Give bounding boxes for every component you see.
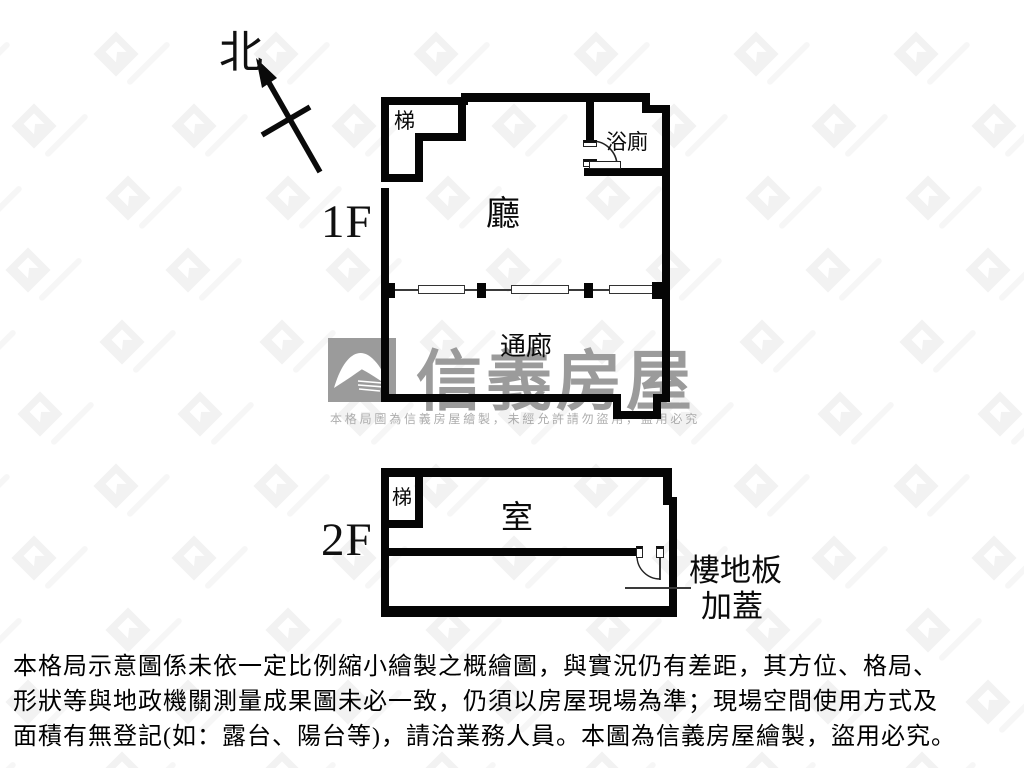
door-jamb: [656, 546, 664, 558]
faint-diagonal-watermark: [24, 398, 56, 430]
wall: [669, 497, 677, 617]
faint-diagonal-watermark: [420, 38, 452, 70]
faint-diagonal-watermark: [266, 758, 298, 768]
faint-diagonal-watermark: [740, 38, 772, 70]
wall: [415, 468, 423, 528]
wall: [461, 93, 650, 102]
wall-post: [389, 283, 395, 298]
annotation-leader-line: [625, 587, 691, 589]
disclaimer-line-2: 形狀等與地政機關測量成果圖未必一致，仍須以房屋現場為準；現場空間使用方式及: [13, 685, 956, 720]
door-jamb: [636, 546, 643, 558]
room-label-room: 室: [501, 492, 533, 538]
faint-diagonal-watermark: [18, 110, 50, 142]
faint-diagonal-watermark: [338, 110, 370, 142]
faint-diagonal-watermark: [106, 326, 138, 358]
faint-diagonal-watermark: [818, 542, 850, 574]
wall: [381, 97, 389, 182]
faint-diagonal-watermark: [812, 254, 844, 286]
faint-diagonal-watermark: [18, 542, 50, 574]
faint-diagonal-watermark: [906, 758, 938, 768]
wall-post: [652, 282, 662, 299]
faint-diagonal-watermark: [432, 182, 464, 214]
faint-diagonal-watermark: [900, 38, 932, 70]
faint-diagonal-watermark: [972, 254, 1004, 286]
wall-post: [477, 283, 486, 298]
room-label-living: 廳: [486, 186, 520, 235]
door-jamb: [583, 140, 597, 147]
faint-diagonal-watermark: [498, 542, 530, 574]
faint-diagonal-watermark: [818, 110, 850, 142]
faint-diagonal-watermark: [746, 758, 778, 768]
annotation-addition: 加蓋: [701, 581, 763, 626]
bathroom-door-leaf: [589, 161, 621, 169]
faint-diagonal-watermark: [112, 182, 144, 214]
faint-diagonal-watermark: [184, 398, 216, 430]
faint-diagonal-watermark: [260, 470, 292, 502]
window: [609, 285, 653, 294]
faint-diagonal-watermark: [752, 182, 784, 214]
faint-diagonal-watermark: [912, 182, 944, 214]
faint-diagonal-watermark: [592, 614, 624, 646]
faint-diagonal-watermark: [112, 614, 144, 646]
faint-diagonal-watermark: [100, 470, 132, 502]
faint-diagonal-watermark: [266, 326, 298, 358]
floor2-label: 2F: [321, 513, 373, 567]
disclaimer-text: 本格局示意圖係未依一定比例縮小繪製之概繪圖，與實況仍有差距，其方位、格局、 形狀…: [13, 650, 956, 755]
faint-diagonal-watermark: [426, 758, 458, 768]
faint-diagonal-watermark: [12, 254, 44, 286]
window: [511, 285, 569, 294]
faint-diagonal-watermark: [172, 254, 204, 286]
faint-diagonal-watermark: [178, 542, 210, 574]
faint-diagonal-watermark: [498, 110, 530, 142]
faint-diagonal-watermark: [592, 182, 624, 214]
wall-post: [584, 283, 593, 298]
faint-diagonal-watermark: [900, 470, 932, 502]
faint-diagonal-watermark: [100, 38, 132, 70]
faint-diagonal-watermark: [972, 686, 1004, 718]
faint-diagonal-watermark: [746, 326, 778, 358]
faint-diagonal-watermark: [332, 254, 364, 286]
faint-diagonal-watermark: [978, 542, 1010, 574]
window: [418, 285, 465, 294]
faint-diagonal-watermark: [432, 614, 464, 646]
disclaimer-line-3: 面積有無登記(如：露台、陽台等)，請洽業務人員。本圖為信義房屋繪製，盜用必究。: [13, 720, 956, 755]
faint-diagonal-watermark: [106, 758, 138, 768]
north-label: 北: [219, 16, 263, 80]
floor1-label: 1F: [321, 195, 373, 249]
faint-diagonal-watermark: [906, 326, 938, 358]
faint-diagonal-watermark: [824, 398, 856, 430]
wall: [381, 174, 423, 182]
faint-diagonal-watermark: [978, 110, 1010, 142]
wall: [381, 188, 389, 402]
room-label-stairs-2f: 梯: [392, 481, 412, 510]
wall: [653, 394, 670, 402]
faint-diagonal-watermark: [740, 470, 772, 502]
faint-diagonal-watermark: [586, 758, 618, 768]
wall: [662, 105, 670, 402]
floorplan-canvas: 信義房屋 本格局圖為信義房屋繪製，未經允許請勿盜用，盜用必究 北 1F 梯 浴廁…: [0, 0, 1024, 768]
faint-diagonal-watermark: [492, 254, 524, 286]
faint-diagonal-watermark: [272, 614, 304, 646]
faint-diagonal-watermark: [272, 182, 304, 214]
faint-diagonal-watermark: [984, 398, 1016, 430]
wall: [381, 97, 468, 105]
wall: [381, 548, 639, 556]
wall: [381, 394, 621, 402]
faint-diagonal-watermark: [912, 614, 944, 646]
faint-diagonal-watermark: [580, 38, 612, 70]
wall: [381, 468, 389, 617]
room-label-corridor: 通廊: [500, 326, 552, 363]
wall: [381, 468, 672, 477]
wall: [586, 93, 594, 142]
disclaimer-line-1: 本格局示意圖係未依一定比例縮小繪製之概繪圖，與實況仍有差距，其方位、格局、: [13, 650, 956, 685]
room-label-stairs-1f: 梯: [394, 105, 415, 135]
wall: [389, 520, 423, 528]
wall: [381, 606, 677, 617]
room-label-bathroom: 浴廁: [606, 126, 648, 156]
